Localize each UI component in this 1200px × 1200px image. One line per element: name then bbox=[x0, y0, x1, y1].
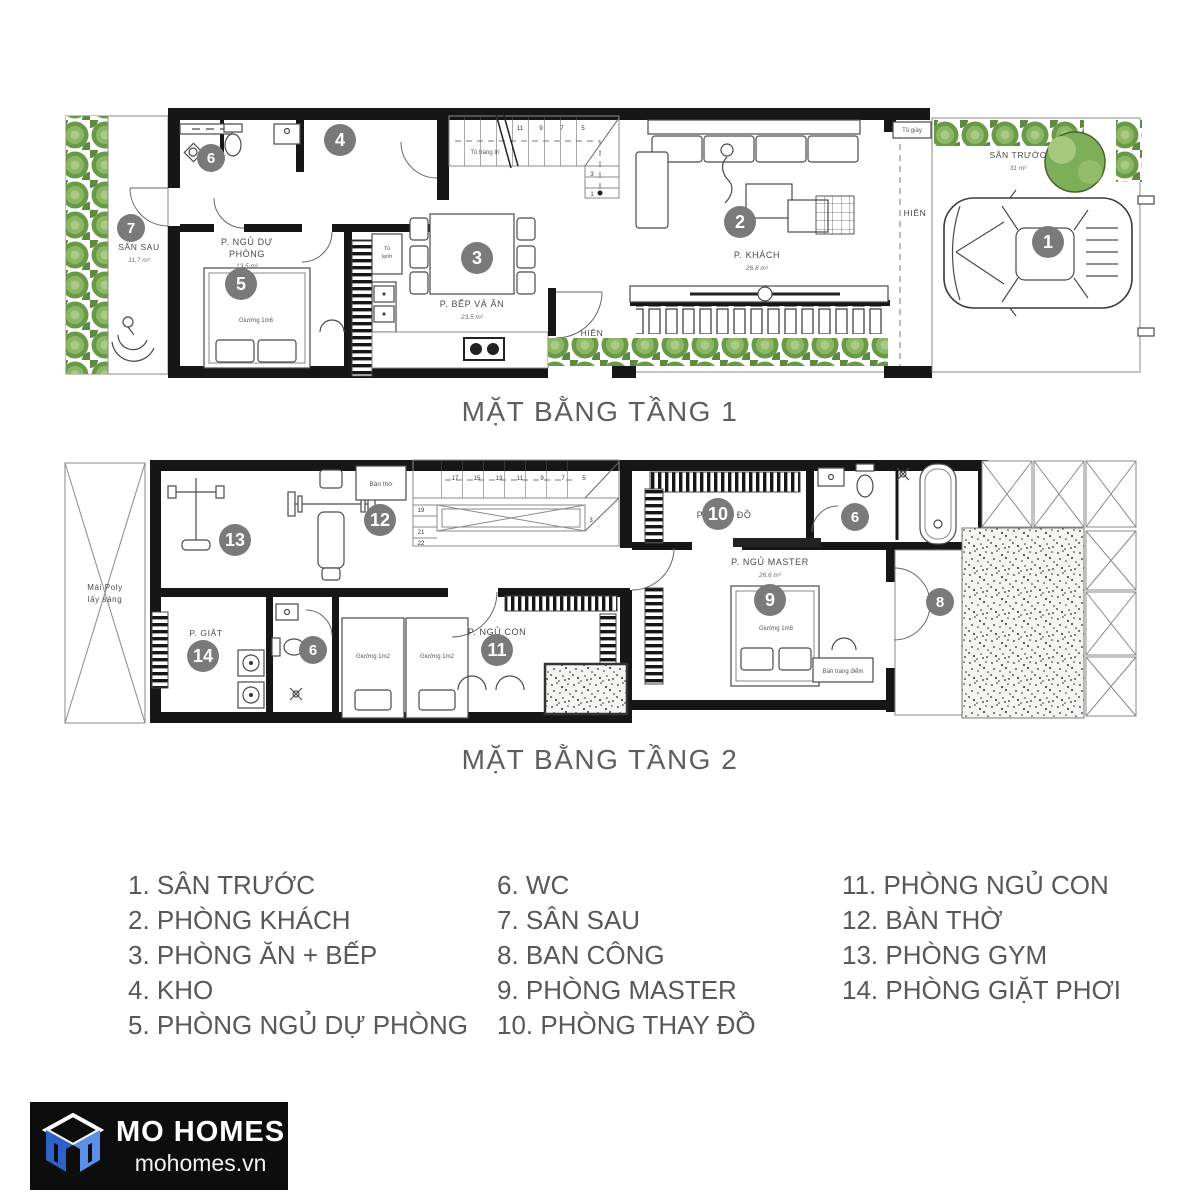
room-marker-13: 13 bbox=[219, 524, 251, 556]
hien-front-label: HIÊN bbox=[581, 328, 604, 338]
room-marker-6-left: 6 bbox=[299, 636, 327, 664]
svg-text:6: 6 bbox=[309, 642, 317, 659]
svg-text:7: 7 bbox=[127, 220, 135, 237]
bedroom-label-2: PHÒNG bbox=[229, 249, 265, 259]
san-sau-area: 11,7 m² bbox=[128, 257, 150, 264]
legend-item-12: 12. BÀN THỜ bbox=[842, 903, 1121, 938]
legend-column-1: 1. SÂN TRƯỚC 2. PHÒNG KHÁCH 3. PHÒNG ĂN … bbox=[128, 868, 468, 1043]
svg-text:8: 8 bbox=[936, 594, 944, 611]
master-area: 26,6 m² bbox=[758, 572, 782, 579]
legend-item-2: 2. PHÒNG KHÁCH bbox=[128, 903, 468, 938]
room-marker-8: 8 bbox=[926, 588, 954, 616]
stair-num: 19 bbox=[418, 508, 425, 514]
floor2-stairs: 17 15 13 11 9 7 5 3 19 21 22 bbox=[413, 460, 619, 547]
floor1-living bbox=[630, 120, 888, 302]
svg-text:6: 6 bbox=[851, 509, 859, 526]
altar-cabinet: Bàn thờ bbox=[356, 466, 406, 500]
floor2-balcony bbox=[894, 528, 1084, 718]
stair-num: 11 bbox=[517, 126, 524, 132]
svg-text:13: 13 bbox=[225, 530, 245, 550]
svg-text:11: 11 bbox=[487, 640, 506, 660]
logo: MO HOMES mohomes.vn bbox=[30, 1102, 288, 1190]
legend-item-7: 7. SÂN SAU bbox=[497, 903, 756, 938]
hien-side-label: HIÊN bbox=[904, 208, 927, 218]
legend-item-6: 6. WC bbox=[497, 868, 756, 903]
floor-plans-drawing: Tủ trang trí 11 9 7 5 3 1 bbox=[0, 0, 1200, 790]
tu-giay-label: Tủ giày bbox=[902, 127, 922, 134]
room-marker-1: 1 bbox=[1032, 226, 1064, 258]
svg-text:4: 4 bbox=[335, 130, 345, 150]
bed-1m6-label: Giường 1m6 bbox=[239, 318, 274, 324]
fridge-label-2: lạnh bbox=[382, 254, 392, 260]
tu-trang-tri-label: Tủ trang trí bbox=[470, 149, 500, 156]
stair-num: 1 bbox=[590, 192, 594, 198]
room-marker-7: 7 bbox=[117, 214, 145, 242]
floor1-hien-strip bbox=[893, 122, 931, 366]
logo-website: mohomes.vn bbox=[135, 1149, 267, 1177]
floor2-master bbox=[632, 472, 873, 686]
logo-text: MO HOMES mohomes.vn bbox=[116, 1115, 285, 1177]
room-marker-14: 14 bbox=[187, 640, 219, 672]
room-marker-6: 6 bbox=[197, 144, 225, 172]
svg-text:14: 14 bbox=[193, 646, 213, 666]
floor1-plan: Tủ trang trí 11 9 7 5 3 1 bbox=[66, 108, 1154, 378]
room-marker-5: 5 bbox=[225, 268, 257, 300]
kitchen-label: P. BẾP VÀ ĂN bbox=[440, 299, 504, 309]
room-marker-3: 3 bbox=[461, 242, 493, 274]
hedge-left bbox=[66, 116, 108, 374]
logo-name: MO HOMES bbox=[116, 1115, 285, 1149]
mohomes-cube-icon bbox=[42, 1112, 104, 1180]
svg-text:5: 5 bbox=[236, 274, 246, 294]
room-marker-4: 4 bbox=[324, 124, 356, 156]
svg-text:6: 6 bbox=[207, 150, 215, 167]
san-truoc-label: SÂN TRƯỚC bbox=[989, 150, 1046, 160]
san-truoc-area: 31 m² bbox=[1010, 165, 1027, 172]
legend-item-1: 1. SÂN TRƯỚC bbox=[128, 868, 468, 903]
room-marker-10: 10 bbox=[702, 498, 734, 530]
svg-text:1: 1 bbox=[1043, 232, 1053, 252]
legend-item-5: 5. PHÒNG NGỦ DỰ PHÒNG bbox=[128, 1008, 468, 1043]
svg-text:10: 10 bbox=[708, 504, 728, 524]
legend-item-3: 3. PHÒNG ĂN + BẾP bbox=[128, 938, 468, 973]
san-sau-label: SÂN SAU bbox=[118, 242, 160, 252]
legend-item-10: 10. PHÒNG THAY ĐỒ bbox=[497, 1008, 756, 1043]
fridge-label-1: Tủ bbox=[384, 245, 390, 252]
laundry-label: P. GIẶT bbox=[189, 628, 222, 638]
floor2-plan: Bàn thờ 17 15 13 11 9 7 5 3 19 21 22 bbox=[65, 460, 1136, 723]
svg-text:9: 9 bbox=[765, 590, 775, 610]
master-label: P. NGỦ MASTER bbox=[731, 556, 809, 567]
stair-num: 15 bbox=[474, 476, 481, 482]
living-area: 26,8 m² bbox=[745, 265, 769, 272]
legend-item-13: 13. PHÒNG GYM bbox=[842, 938, 1121, 973]
floorplan-sheet: Tủ trang trí 11 9 7 5 3 1 bbox=[0, 0, 1200, 1200]
stair-num: 22 bbox=[418, 541, 425, 547]
room-marker-6-right: 6 bbox=[841, 503, 869, 531]
stair-num: 17 bbox=[452, 476, 459, 482]
legend-column-2: 6. WC 7. SÂN SAU 8. BAN CÔNG 9. PHÒNG MA… bbox=[497, 868, 756, 1043]
stair-num: 13 bbox=[496, 476, 503, 482]
room-marker-12: 12 bbox=[364, 504, 396, 536]
floor1-title: MẶT BẰNG TẦNG 1 bbox=[0, 396, 1200, 428]
vanity-label: Bàn trang điểm bbox=[823, 668, 864, 675]
skylight-label-2: lấy sáng bbox=[88, 595, 123, 604]
room-marker-9: 9 bbox=[754, 584, 786, 616]
floor1-kitchen bbox=[372, 214, 548, 368]
kitchen-area: 23,5 m² bbox=[460, 314, 484, 321]
bedroom-label-1: P. NGỦ DỰ bbox=[221, 236, 273, 247]
bed-1m8-label: Giường 1m8 bbox=[759, 626, 794, 632]
stair-num: 21 bbox=[418, 530, 425, 536]
ban-tho-label: Bàn thờ bbox=[369, 481, 393, 488]
floor2-gym bbox=[168, 470, 375, 580]
legend-item-8: 8. BAN CÔNG bbox=[497, 938, 756, 973]
bed-1m2-a-label: Giường 1m2 bbox=[356, 654, 391, 660]
legend-item-14: 14. PHÒNG GIẶT PHƠI bbox=[842, 973, 1121, 1008]
svg-text:2: 2 bbox=[735, 212, 745, 232]
living-label: P. KHÁCH bbox=[734, 250, 780, 260]
svg-text:3: 3 bbox=[472, 248, 482, 268]
svg-text:12: 12 bbox=[370, 510, 390, 530]
room-marker-2: 2 bbox=[724, 206, 756, 238]
floor2-title: MẶT BẰNG TẦNG 2 bbox=[0, 744, 1200, 776]
bed-1m2-b-label: Giường 1m2 bbox=[420, 654, 455, 660]
legend-item-4: 4. KHO bbox=[128, 973, 468, 1008]
floor1-stairs: Tủ trang trí 11 9 7 5 3 1 bbox=[449, 112, 619, 198]
legend-item-9: 9. PHÒNG MASTER bbox=[497, 973, 756, 1008]
legend-item-11: 11. PHÒNG NGỦ CON bbox=[842, 868, 1121, 903]
room-marker-11: 11 bbox=[481, 634, 513, 666]
legend-column-3: 11. PHÒNG NGỦ CON 12. BÀN THỜ 13. PHÒNG … bbox=[842, 868, 1121, 1008]
skylight-panel bbox=[65, 463, 145, 723]
skylight-label-1: Mái Poly bbox=[87, 583, 122, 592]
floor2-master-wc bbox=[812, 464, 956, 544]
stair-num: 11 bbox=[517, 476, 524, 482]
stair-num: 5 bbox=[582, 476, 586, 482]
